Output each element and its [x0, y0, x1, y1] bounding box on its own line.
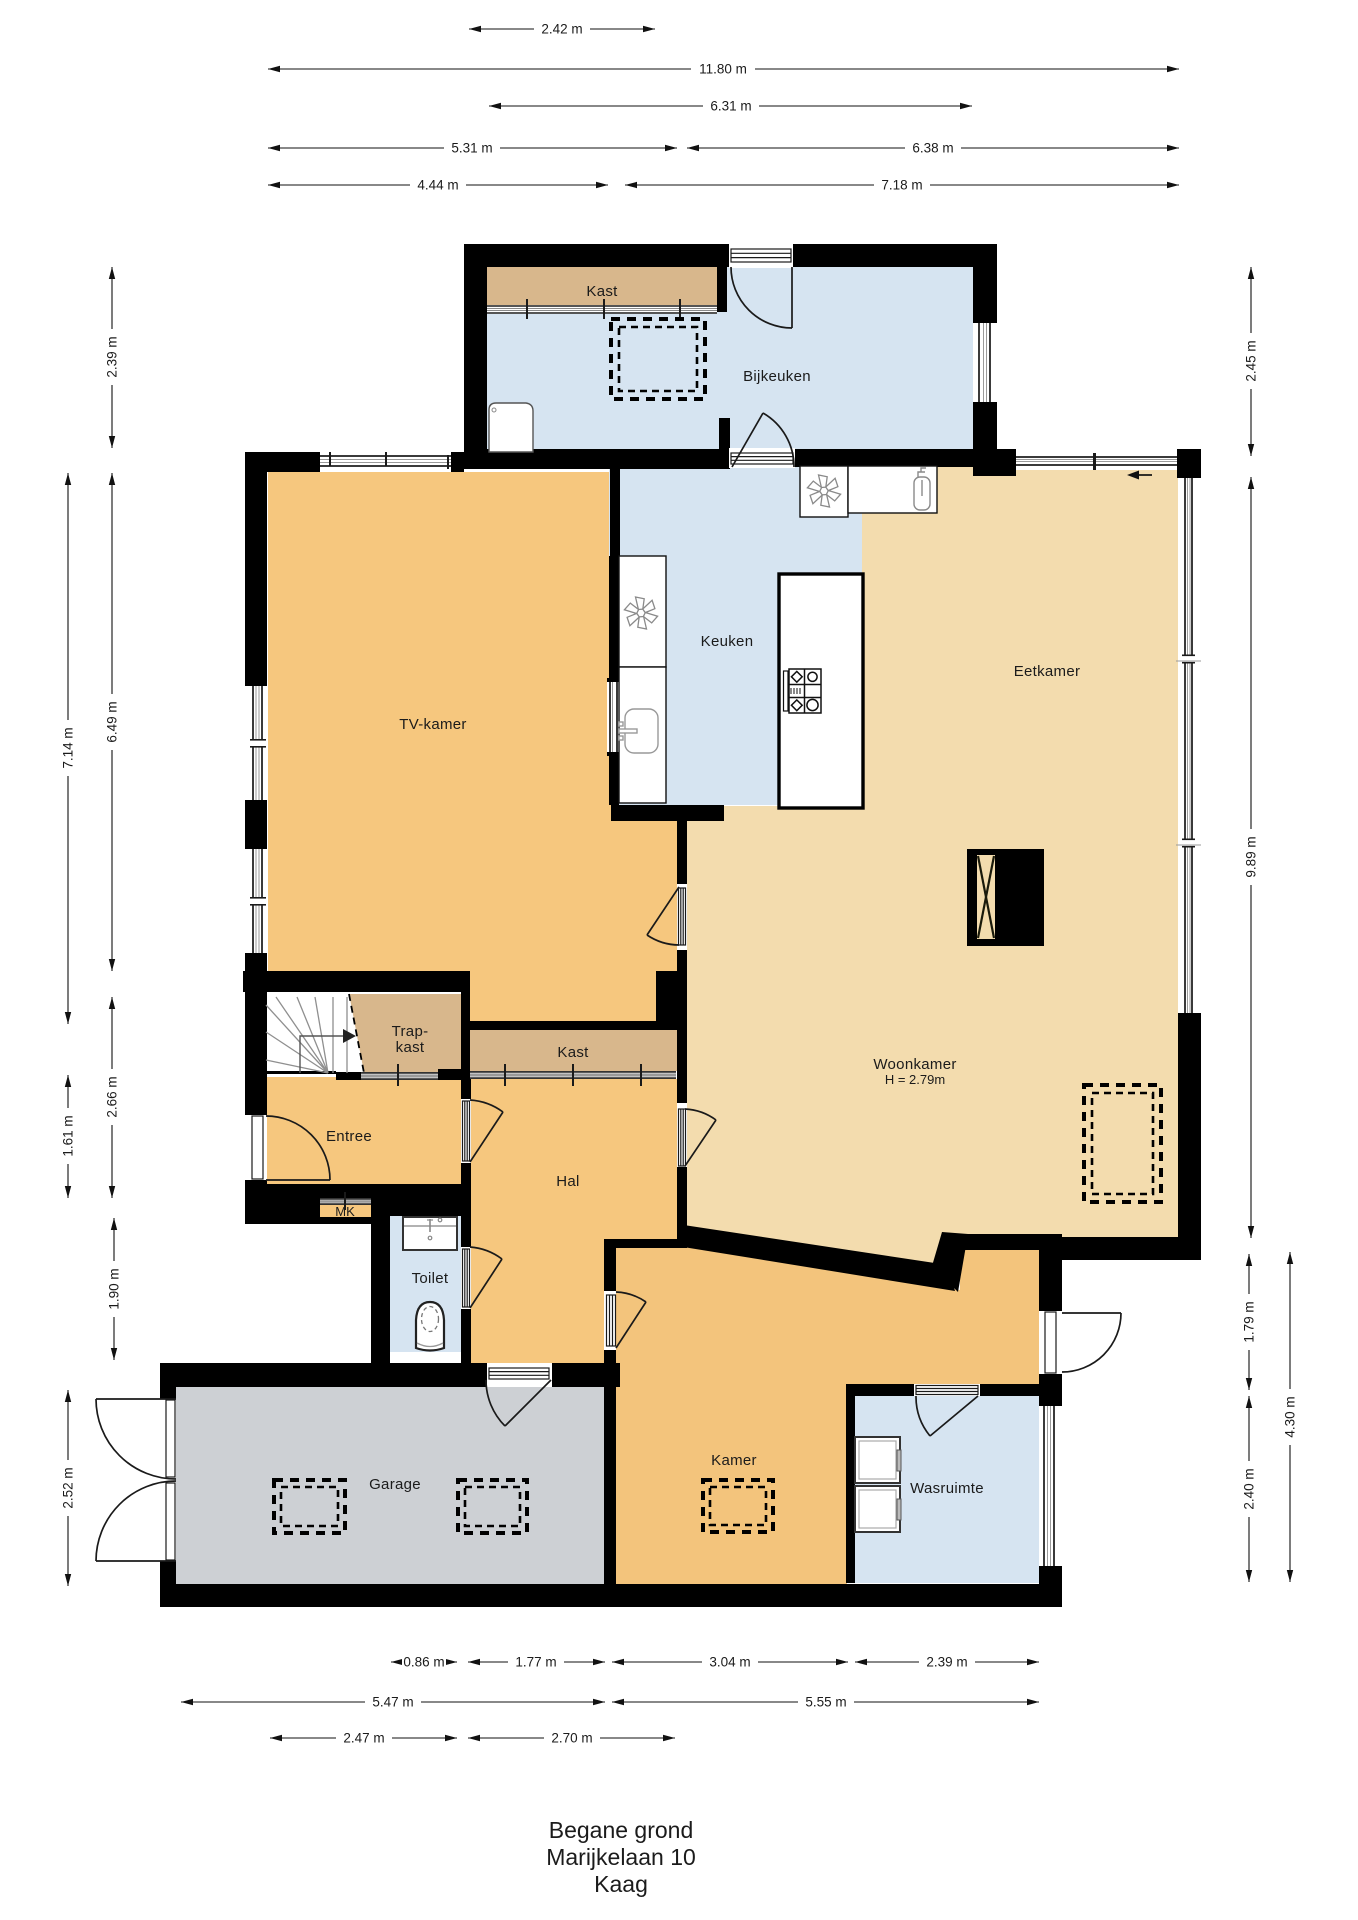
- svg-text:Woonkamer: Woonkamer: [873, 1056, 956, 1073]
- svg-text:Kast: Kast: [586, 283, 618, 300]
- svg-text:0.86 m: 0.86 m: [403, 1655, 444, 1670]
- svg-text:Trap-: Trap-: [392, 1023, 429, 1040]
- svg-text:2.47 m: 2.47 m: [343, 1731, 384, 1746]
- svg-text:5.55 m: 5.55 m: [805, 1695, 846, 1710]
- svg-text:2.70 m: 2.70 m: [551, 1731, 592, 1746]
- svg-text:3.04 m: 3.04 m: [709, 1655, 750, 1670]
- svg-text:7.14 m: 7.14 m: [61, 727, 76, 768]
- svg-text:4.30 m: 4.30 m: [1283, 1396, 1298, 1437]
- svg-text:2.40 m: 2.40 m: [1242, 1468, 1257, 1509]
- svg-text:Toilet: Toilet: [412, 1270, 449, 1287]
- svg-text:Kamer: Kamer: [711, 1452, 757, 1469]
- svg-text:TV-kamer: TV-kamer: [399, 716, 466, 733]
- svg-text:2.39 m: 2.39 m: [105, 336, 120, 377]
- svg-text:2.42 m: 2.42 m: [541, 22, 582, 37]
- svg-text:Garage: Garage: [369, 1476, 421, 1493]
- svg-text:kast: kast: [396, 1039, 425, 1056]
- svg-text:5.31 m: 5.31 m: [451, 141, 492, 156]
- svg-text:5.47 m: 5.47 m: [372, 1695, 413, 1710]
- svg-text:Entree: Entree: [326, 1128, 372, 1145]
- svg-text:Wasruimte: Wasruimte: [910, 1480, 984, 1497]
- svg-text:1.61 m: 1.61 m: [61, 1115, 76, 1156]
- svg-text:Bijkeuken: Bijkeuken: [743, 368, 811, 385]
- svg-text:2.45 m: 2.45 m: [1244, 340, 1259, 381]
- svg-text:6.31 m: 6.31 m: [710, 99, 751, 114]
- svg-text:6.38 m: 6.38 m: [912, 141, 953, 156]
- svg-text:2.39 m: 2.39 m: [926, 1655, 967, 1670]
- svg-text:4.44 m: 4.44 m: [417, 178, 458, 193]
- svg-text:11.80 m: 11.80 m: [699, 62, 747, 77]
- svg-text:1.77 m: 1.77 m: [515, 1655, 556, 1670]
- svg-text:Eetkamer: Eetkamer: [1014, 663, 1081, 680]
- svg-text:Begane grond: Begane grond: [549, 1817, 694, 1843]
- svg-text:7.18 m: 7.18 m: [881, 178, 922, 193]
- svg-text:Marijkelaan 10: Marijkelaan 10: [546, 1844, 696, 1870]
- svg-text:2.52 m: 2.52 m: [61, 1467, 76, 1508]
- svg-text:Hal: Hal: [556, 1173, 579, 1190]
- svg-text:6.49 m: 6.49 m: [105, 701, 120, 742]
- svg-text:2.66 m: 2.66 m: [105, 1076, 120, 1117]
- svg-text:1.90 m: 1.90 m: [107, 1268, 122, 1309]
- svg-text:1.79 m: 1.79 m: [1242, 1301, 1257, 1342]
- svg-text:MK: MK: [335, 1204, 355, 1219]
- svg-text:Kaag: Kaag: [594, 1871, 648, 1897]
- svg-text:Kast: Kast: [557, 1044, 589, 1061]
- svg-text:Keuken: Keuken: [701, 633, 754, 650]
- svg-text:9.89 m: 9.89 m: [1244, 836, 1259, 877]
- svg-text:H = 2.79m: H = 2.79m: [885, 1072, 945, 1087]
